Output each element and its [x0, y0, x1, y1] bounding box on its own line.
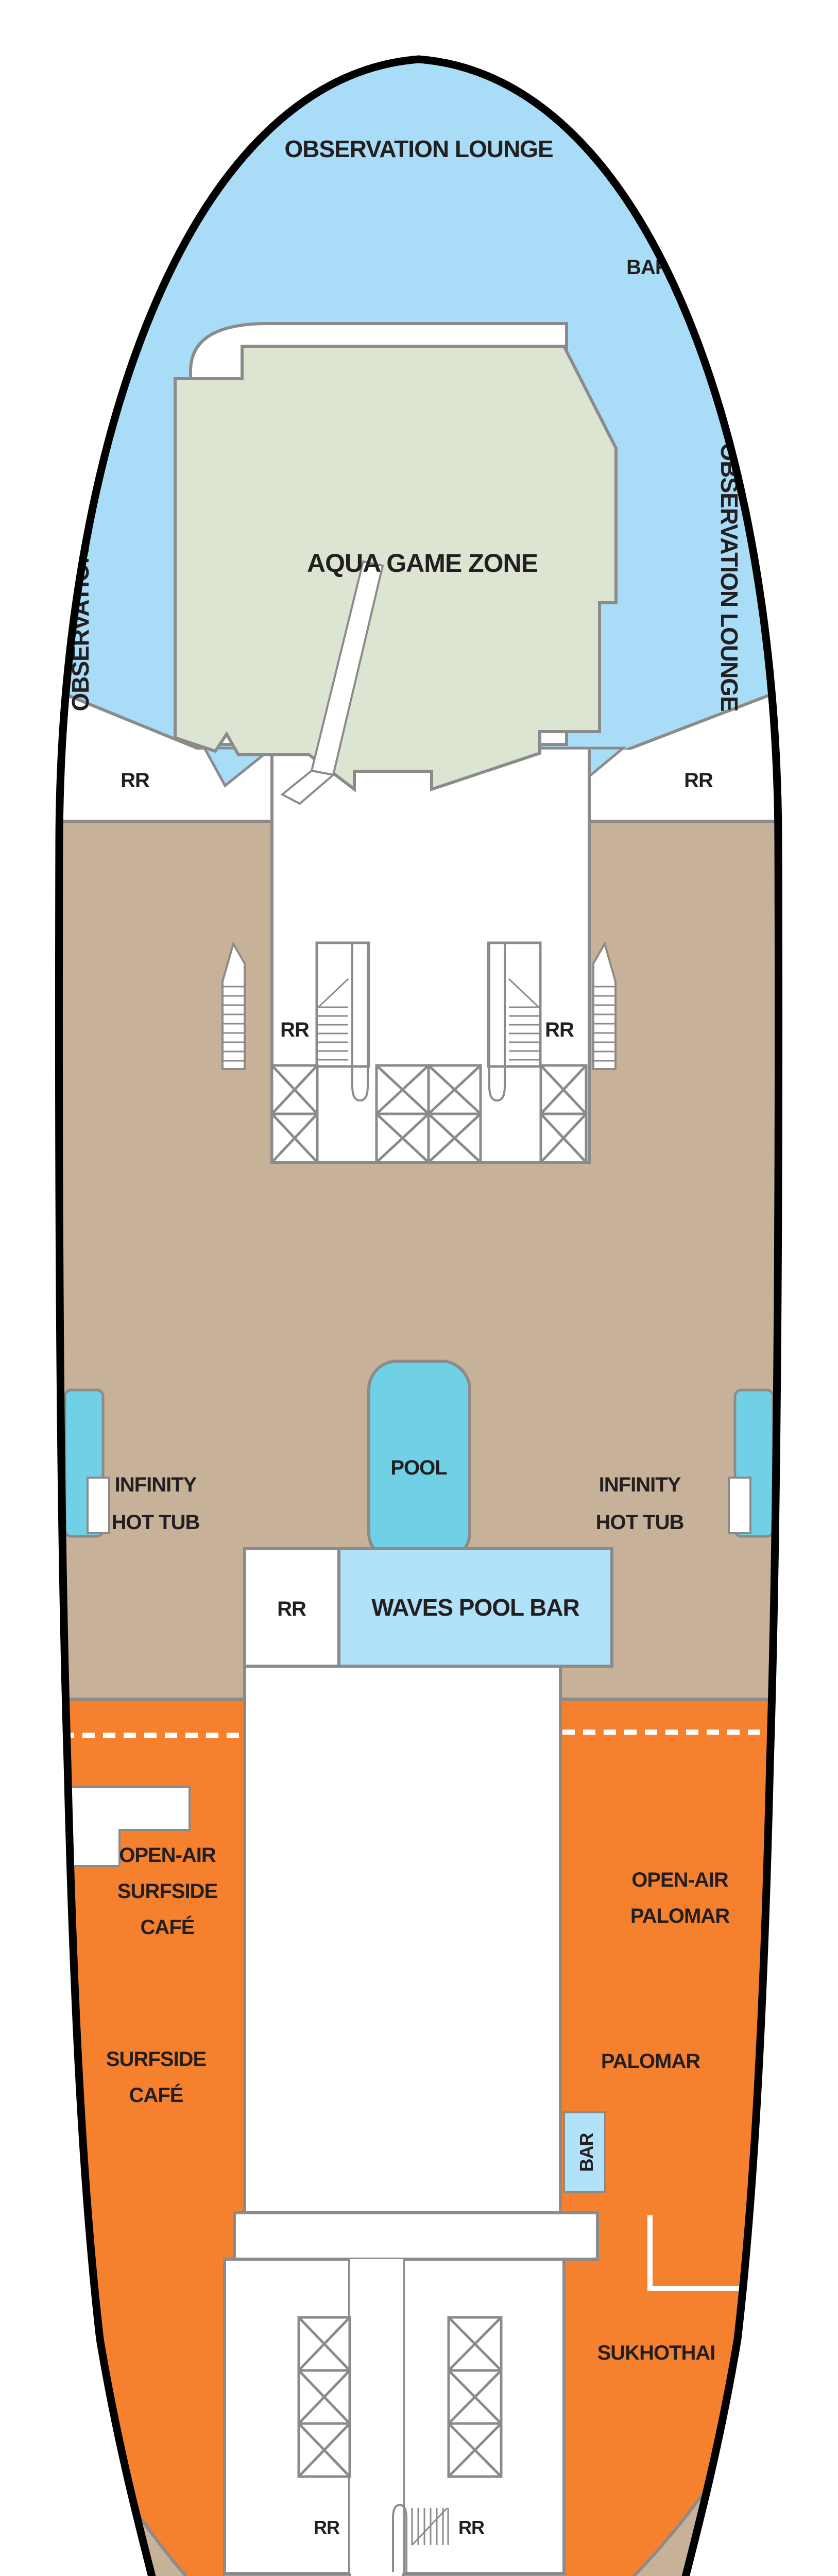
open-air-palomar-label-2: PALOMAR: [630, 1905, 730, 1927]
aft-core-strip: [350, 2259, 403, 2576]
pool-label: POOL: [390, 1456, 447, 1479]
palomar-label: PALOMAR: [601, 2050, 700, 2073]
open-air-palomar-label-1: OPEN-AIR: [631, 1869, 729, 1891]
deck-plan-canvas: OBSERVATION LOUNGE BAR OBSERVATION LOUNG…: [0, 0, 838, 2576]
observation-lounge-label-top: OBSERVATION LOUNGE: [284, 135, 553, 162]
surfside-cafe-label-1: SURFSIDE: [106, 2048, 207, 2071]
open-air-surfside-cafe-label-1: OPEN-AIR: [119, 1844, 216, 1867]
open-air-surfside-cafe-label-2: SURFSIDE: [117, 1880, 218, 1903]
rr-label-band-left: RR: [121, 769, 150, 792]
infinity-hot-tub-label-left-1: INFINITY: [115, 1473, 197, 1496]
rr-label-core-right: RR: [545, 1019, 574, 1041]
surfside-cafe-label-2: CAFÉ: [129, 2083, 183, 2107]
rr-label-galley-right: RR: [458, 2517, 485, 2538]
rr-label-band-right: RR: [684, 769, 713, 792]
rr-label-poolbar: RR: [277, 1598, 306, 1620]
waves-pool-bar-label: WAVES POOL BAR: [371, 1594, 579, 1621]
bar-palomar-label: BAR: [576, 2133, 597, 2172]
buffet-structure: [245, 1666, 560, 2213]
infinity-hot-tub-left: [65, 1390, 109, 1536]
galley-corridor: [234, 2213, 597, 2259]
aqua-game-zone-label: AQUA GAME ZONE: [307, 549, 538, 578]
infinity-hot-tub-label-right-1: INFINITY: [599, 1473, 681, 1496]
infinity-hot-tub-label-left-2: HOT TUB: [112, 1511, 200, 1534]
sukhothai-label: SUKHOTHAI: [597, 2342, 715, 2364]
rr-label-galley-left: RR: [314, 2517, 340, 2538]
rr-label-core-left: RR: [280, 1019, 310, 1041]
infinity-hot-tub-right: [729, 1390, 773, 1536]
infinity-hot-tub-label-right-2: HOT TUB: [596, 1511, 684, 1534]
open-air-surfside-cafe-label-3: CAFÉ: [141, 1916, 195, 1939]
deck-plan-page: OBSERVATION LOUNGE BAR OBSERVATION LOUNG…: [0, 0, 838, 2576]
